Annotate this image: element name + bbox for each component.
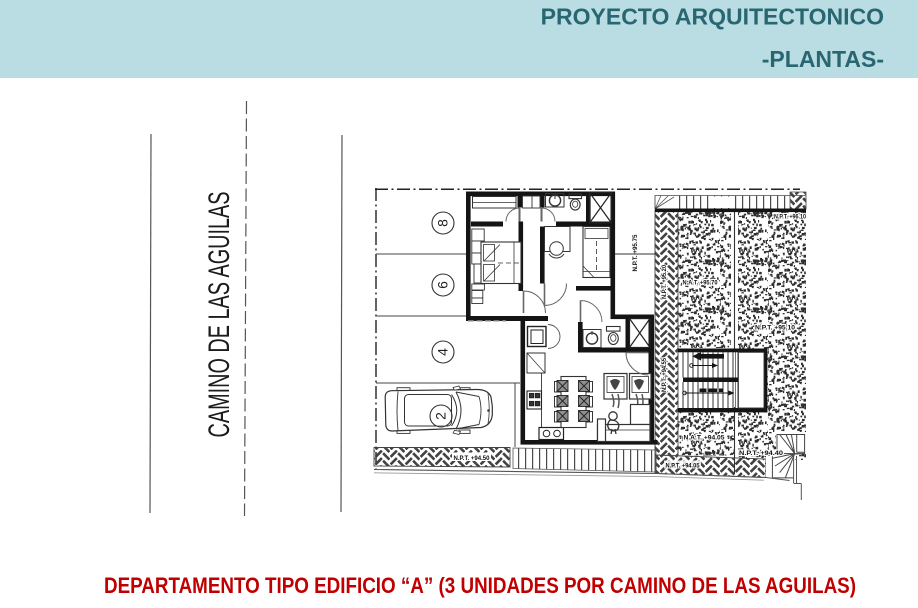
svg-text:-PLANTAS-: -PLANTAS-: [762, 46, 884, 72]
svg-text:N.P.T. +96.10: N.P.T. +96.10: [774, 214, 806, 221]
svg-text:PROYECTO ARQUITECTONICO: PROYECTO ARQUITECTONICO: [541, 4, 884, 30]
svg-text:N.P.T. +94.50: N.P.T. +94.50: [454, 455, 490, 462]
svg-text:8: 8: [435, 219, 451, 227]
svg-text:2: 2: [433, 412, 449, 420]
svg-text:DEPARTAMENTO TIPO EDIFICIO “A”: DEPARTAMENTO TIPO EDIFICIO “A” (3 UNIDAD…: [104, 573, 856, 598]
svg-text:N.P.T. +94.55: N.P.T. +94.55: [661, 357, 668, 392]
svg-text:CAMINO DE LAS AGUILAS: CAMINO DE LAS AGUILAS: [203, 192, 236, 438]
svg-text:N.A.T. +94.05: N.A.T. +94.05: [684, 435, 725, 442]
svg-text:N.P.T. +95.20: N.P.T. +95.20: [661, 264, 668, 299]
svg-text:N.P.T. +95.75: N.P.T. +95.75: [632, 234, 639, 271]
svg-text:N.A.T. +95.70: N.A.T. +95.70: [683, 280, 718, 287]
svg-text:4: 4: [435, 348, 451, 356]
svg-text:6: 6: [435, 281, 451, 289]
svg-text:N.P.T. +94.40: N.P.T. +94.40: [739, 450, 784, 457]
svg-text:N.P.T. +95.10: N.P.T. +95.10: [755, 325, 795, 332]
svg-text:N.P.T. +94.05: N.P.T. +94.05: [666, 462, 701, 469]
